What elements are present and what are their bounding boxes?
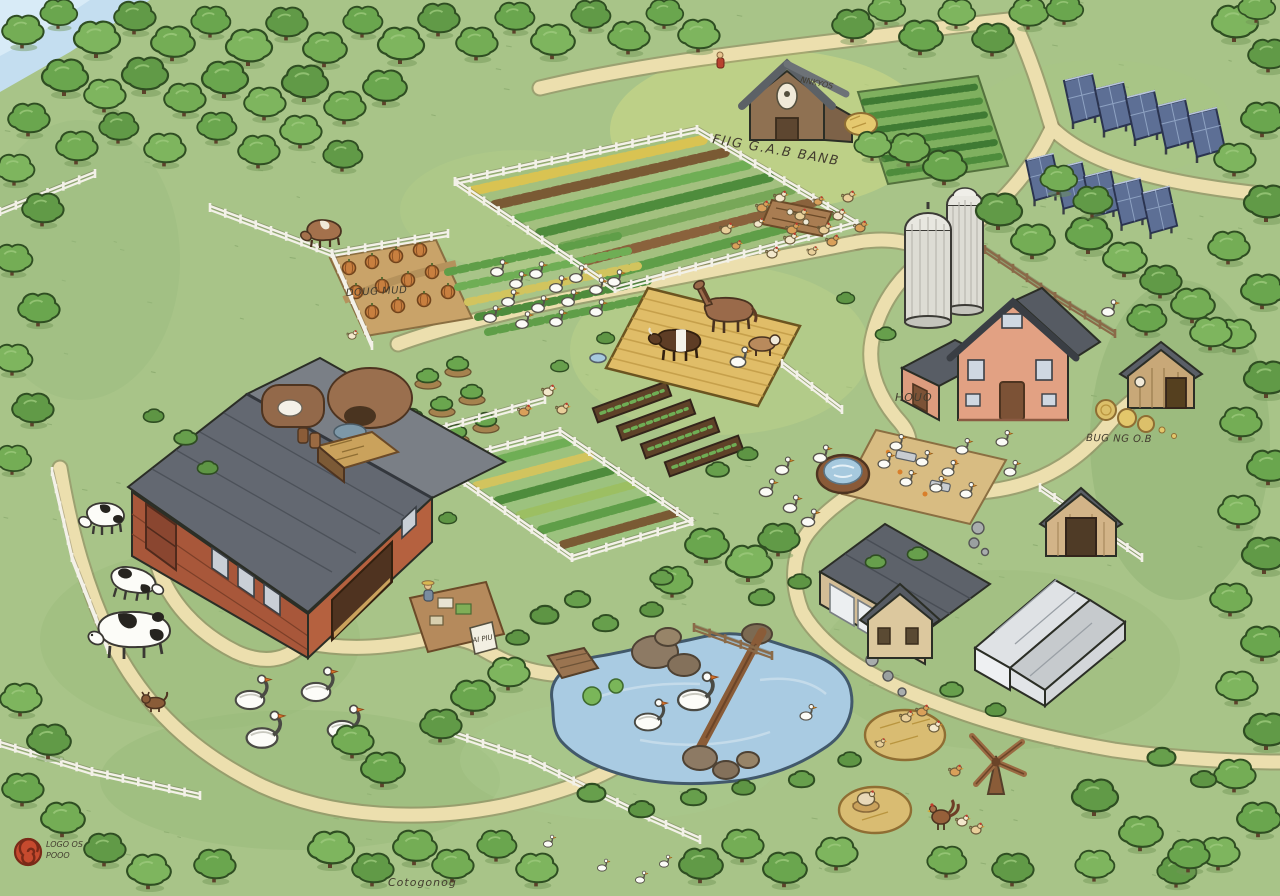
gable-window — [1002, 314, 1022, 328]
hay-shed-label: BUG NG O.B — [1086, 433, 1152, 445]
logo-text-line1: LOGO OS — [46, 840, 83, 849]
wing-window — [906, 628, 918, 644]
market-stand — [410, 581, 504, 654]
stone — [969, 538, 979, 548]
stone — [898, 688, 906, 696]
hay-bale — [1138, 416, 1154, 432]
stone — [972, 522, 984, 534]
barrel — [310, 433, 320, 448]
shelter-opening — [344, 406, 376, 426]
hay-bale — [1096, 400, 1116, 420]
hay-shed-opening — [1166, 378, 1186, 408]
shed-window — [1135, 377, 1145, 387]
shed-opening — [1066, 518, 1096, 556]
hay-bale — [1118, 409, 1136, 427]
farm-map-canvas: FIIG G.A.B BANB NNKYOS DOUG MUD HOUO BUG… — [0, 0, 1280, 896]
window — [1036, 360, 1052, 380]
farmhouse-label: HOUO — [895, 391, 933, 404]
goat — [278, 400, 302, 416]
hay-pile — [845, 113, 877, 135]
barrel — [298, 428, 308, 443]
logo-text-line2: POOO — [46, 851, 70, 860]
small-barn-door — [776, 118, 798, 140]
crate — [438, 598, 453, 608]
stone — [982, 549, 989, 556]
lily-pad — [609, 679, 623, 693]
crate — [456, 604, 471, 614]
lily-pad — [583, 687, 601, 705]
window — [1042, 394, 1056, 406]
trough — [590, 354, 606, 363]
bottom-note-label: Cotogonog — [388, 876, 457, 889]
front-door — [1000, 382, 1024, 420]
crate — [430, 616, 443, 625]
farm-map-illustration: FIIG G.A.B BANB NNKYOS DOUG MUD HOUO BUG… — [0, 0, 1280, 896]
window — [968, 360, 984, 380]
window — [966, 394, 980, 406]
stone — [883, 671, 893, 681]
farmer-top — [717, 52, 724, 68]
logo — [15, 839, 41, 865]
wing-window — [878, 628, 890, 644]
silo-left — [905, 202, 951, 328]
